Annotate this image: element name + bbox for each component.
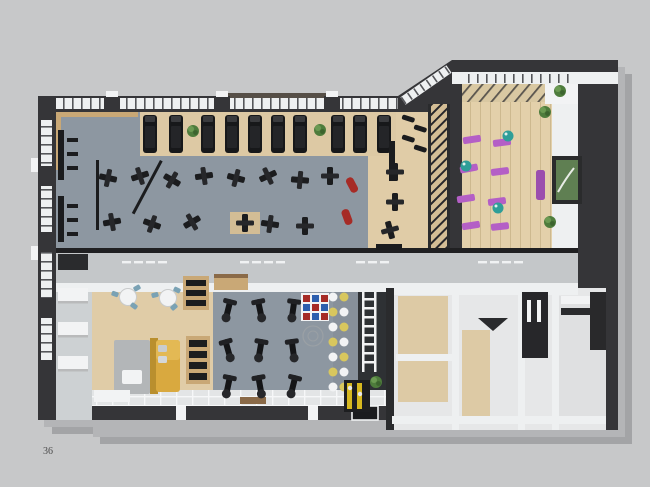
west-column-cap bbox=[31, 158, 38, 172]
south-door-post bbox=[176, 406, 186, 420]
wall-panel bbox=[58, 322, 88, 336]
treadmill bbox=[201, 115, 215, 153]
misc-accents bbox=[96, 160, 99, 230]
treadmill bbox=[225, 115, 239, 153]
rooms-west-wall bbox=[386, 288, 394, 430]
west-window bbox=[41, 120, 52, 166]
locker-slot bbox=[537, 300, 541, 322]
plant-icon bbox=[187, 125, 199, 137]
floor-plan-render bbox=[0, 0, 650, 487]
slat-rail bbox=[428, 104, 431, 252]
room-a-wall bbox=[396, 354, 452, 361]
dark-cabinet bbox=[590, 292, 606, 350]
west-window bbox=[41, 252, 52, 298]
wall-cabinet-dark bbox=[58, 254, 88, 270]
standing-mat bbox=[536, 170, 545, 200]
treadmill bbox=[293, 115, 307, 153]
treadmill bbox=[248, 115, 262, 153]
bookshelf-2 bbox=[186, 336, 210, 384]
wall-rail bbox=[96, 160, 99, 230]
dark-lockers bbox=[522, 292, 548, 358]
plant-icon bbox=[544, 216, 556, 228]
document-page: 36 bbox=[0, 0, 650, 487]
plant-icon bbox=[370, 376, 382, 388]
wall-picture-art bbox=[556, 160, 578, 200]
locker-slot bbox=[527, 300, 531, 322]
corridor bbox=[56, 248, 578, 292]
slat-rail bbox=[447, 104, 450, 252]
west-column-cap bbox=[31, 246, 38, 260]
plant-icon bbox=[554, 85, 566, 97]
reception-counter bbox=[94, 390, 130, 402]
pier-cap bbox=[326, 91, 338, 97]
panel-shadow bbox=[58, 301, 88, 304]
wall-panel bbox=[58, 288, 88, 302]
sofa-pillow bbox=[158, 356, 167, 363]
dumbbell-rack bbox=[376, 244, 402, 250]
north-pier bbox=[104, 96, 120, 111]
sofa bbox=[150, 338, 180, 394]
rooms-south-wall bbox=[392, 416, 606, 424]
rooms-north-wall bbox=[390, 288, 578, 295]
panel-shadow bbox=[58, 335, 88, 338]
kettlebell-station bbox=[344, 380, 370, 412]
rooms-wall-3 bbox=[552, 292, 559, 430]
treadmill bbox=[353, 115, 367, 153]
studio-north-window bbox=[462, 74, 574, 83]
plant-icon bbox=[314, 124, 326, 136]
rug bbox=[114, 340, 150, 394]
treadmill bbox=[331, 115, 345, 153]
climbing-grid bbox=[301, 293, 329, 321]
north-pier bbox=[324, 96, 340, 111]
pier-cap bbox=[216, 91, 228, 97]
west-window bbox=[41, 318, 52, 360]
coffee-table bbox=[122, 370, 142, 384]
room-b-wood-floor bbox=[462, 330, 490, 424]
room-a-wood-floor bbox=[398, 296, 448, 402]
corridor-edge bbox=[56, 248, 578, 253]
bookshelf-1 bbox=[183, 276, 209, 310]
plant-icon bbox=[539, 106, 551, 118]
west-window bbox=[41, 186, 52, 232]
corner-beam bbox=[56, 112, 138, 117]
wall-wood-cap bbox=[225, 93, 335, 98]
sofa-pillow bbox=[158, 345, 167, 352]
panel-shadow bbox=[58, 369, 88, 372]
treadmill bbox=[377, 115, 391, 153]
corridor-floor bbox=[56, 252, 578, 288]
locker-rooms bbox=[386, 288, 606, 430]
treadmill bbox=[271, 115, 285, 153]
treadmill bbox=[143, 115, 157, 153]
equipment-cabinet bbox=[214, 274, 248, 290]
treadmill bbox=[169, 115, 183, 153]
north-pier bbox=[214, 96, 230, 111]
page-number: 36 bbox=[43, 446, 53, 457]
slat-partition bbox=[428, 104, 450, 252]
rooms-wall-1 bbox=[452, 292, 459, 430]
south-door-post bbox=[308, 406, 318, 420]
pier-cap bbox=[106, 91, 118, 97]
wall-panel bbox=[58, 356, 88, 370]
